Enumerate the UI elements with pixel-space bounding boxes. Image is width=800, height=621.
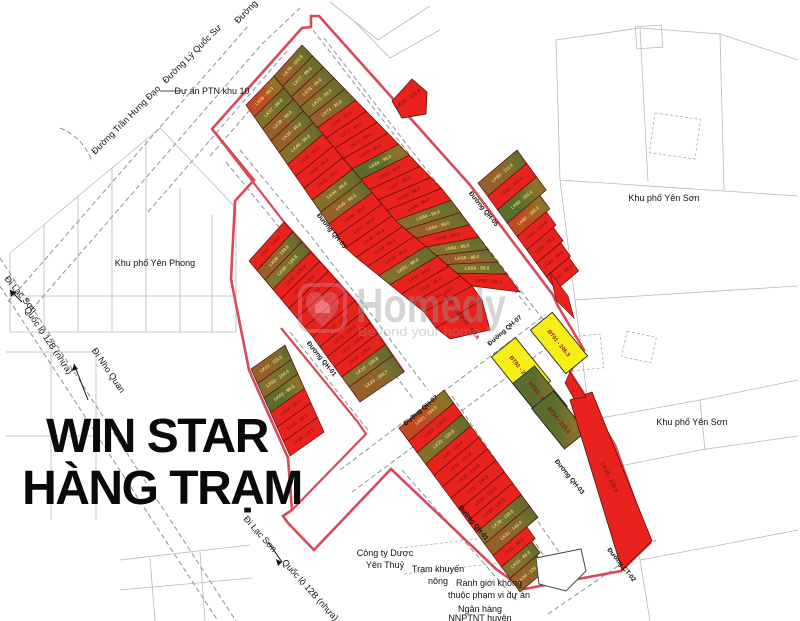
svg-text:nông: nông [428,576,448,586]
svg-text:Ranh giới không: Ranh giới không [456,578,522,588]
svg-text:thuộc phạm vi dự án: thuộc phạm vi dự án [448,590,530,600]
svg-text:HÀNG TRẠM: HÀNG TRẠM [22,461,302,515]
svg-text:Yên Thuỷ: Yên Thuỷ [366,560,405,570]
svg-text:Khu phố Yên Phong: Khu phố Yên Phong [115,258,195,268]
svg-text:Khu phố Yên Sơn: Khu phố Yên Sơn [628,193,699,203]
svg-text:LK59 - 99.0: LK59 - 99.0 [465,265,490,270]
svg-text:WIN STAR: WIN STAR [46,410,269,463]
svg-text:NNPTNT huyện: NNPTNT huyện [448,613,511,621]
svg-text:Khu phố Yên Sơn: Khu phố Yên Sơn [656,417,727,427]
svg-text:Beyond your home: Beyond your home [358,324,480,339]
svg-text:Dự án PTN khu 10: Dự án PTN khu 10 [174,86,249,96]
svg-text:Trạm khuyến: Trạm khuyến [412,564,464,574]
svg-text:Công ty Dược: Công ty Dược [357,548,414,558]
